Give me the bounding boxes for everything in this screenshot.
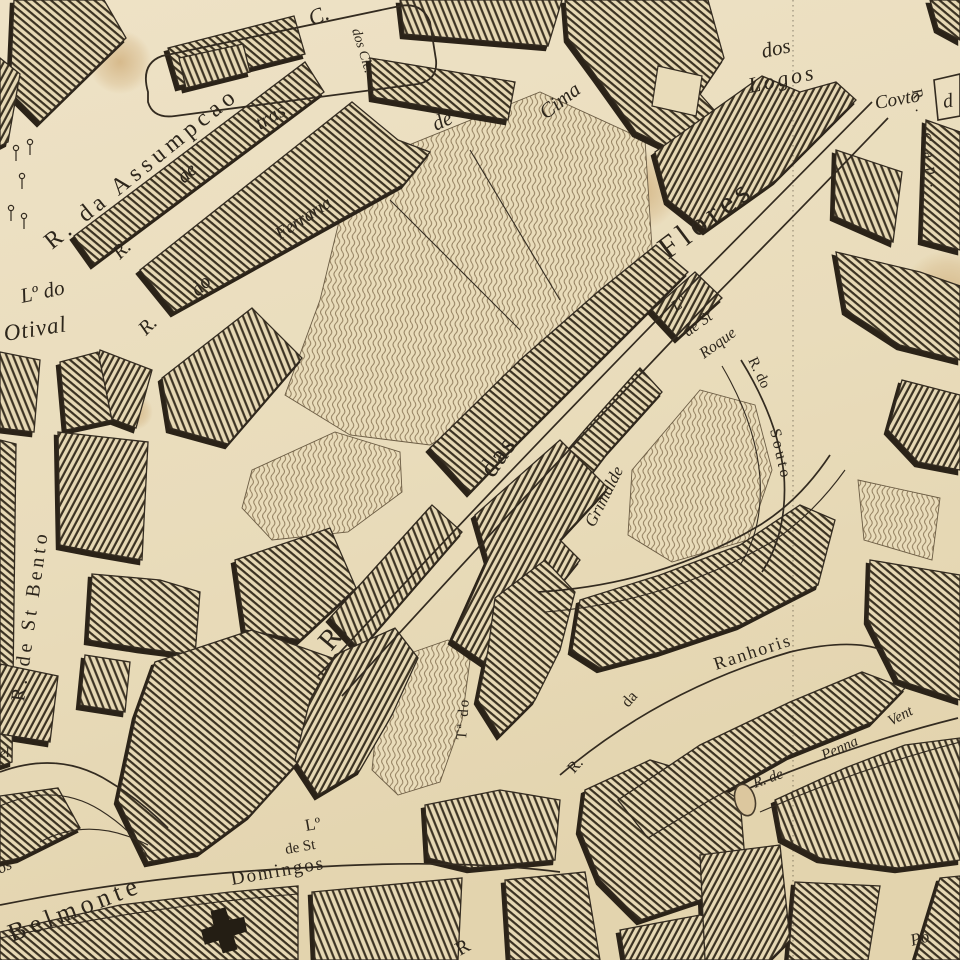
city-block: [0, 352, 40, 432]
antique-street-map: C. dos Cle. R. da Assumpcao R. de tras R…: [0, 0, 960, 960]
street-label-ta-do: Tª do: [454, 697, 473, 740]
city-block: [58, 432, 148, 560]
city-block: [80, 655, 130, 712]
map-canvas: C. dos Cle. R. da Assumpcao R. de tras R…: [0, 0, 960, 960]
street-label-domingos-line1: Lº: [303, 814, 322, 835]
city-block: [700, 845, 790, 960]
city-block: [312, 878, 462, 960]
city-block: [788, 882, 880, 960]
city-block: [505, 872, 600, 960]
city-block: [425, 790, 560, 868]
